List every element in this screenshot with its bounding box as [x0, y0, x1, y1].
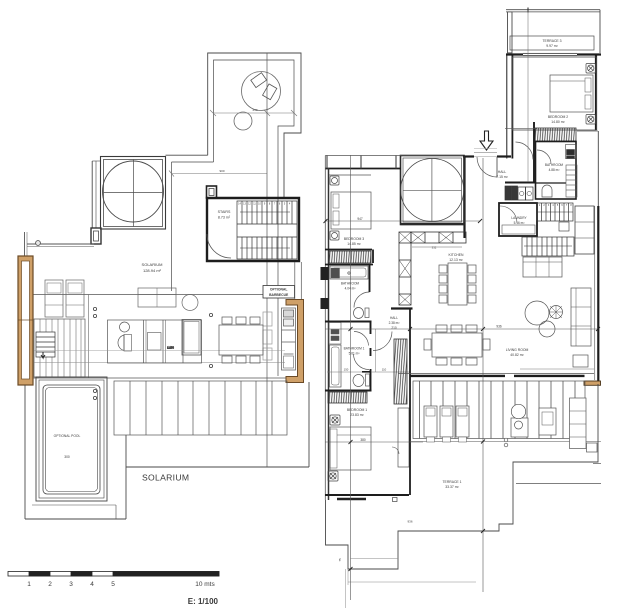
svg-text:BEDROOM 2: BEDROOM 2: [548, 115, 568, 119]
svg-text:2.38 m²: 2.38 m²: [389, 321, 400, 325]
svg-text:9.97 m²: 9.97 m²: [546, 44, 558, 48]
svg-text:LAUNDRY: LAUNDRY: [511, 216, 527, 220]
svg-text:4.88 m²: 4.88 m²: [549, 168, 560, 172]
svg-text:TERRACE 1: TERRACE 1: [442, 480, 461, 484]
svg-text:BATHROOM 1: BATHROOM 1: [344, 347, 365, 351]
svg-text:HALL: HALL: [498, 170, 507, 174]
svg-text:TERRACE 3: TERRACE 3: [542, 39, 561, 43]
svg-text:BARBECUE: BARBECUE: [269, 293, 289, 297]
svg-text:E: 1/100: E: 1/100: [188, 597, 219, 606]
svg-text:SOLARIUM: SOLARIUM: [142, 262, 163, 267]
svg-text:BATHROOM: BATHROOM: [545, 163, 564, 167]
svg-text:2: 2: [48, 581, 52, 588]
svg-text:332: 332: [432, 246, 437, 250]
svg-text:210: 210: [391, 326, 397, 330]
svg-text:150: 150: [344, 368, 349, 372]
svg-text:LIVING ROOM: LIVING ROOM: [506, 348, 529, 352]
svg-text:12.13 m²: 12.13 m²: [449, 258, 463, 262]
svg-text:947: 947: [357, 217, 363, 221]
svg-text:14.85 m²: 14.85 m²: [347, 242, 361, 246]
svg-text:5: 5: [111, 581, 115, 588]
svg-text:5.16 m²: 5.16 m²: [514, 221, 525, 225]
svg-text:23.83 m²: 23.83 m²: [350, 413, 364, 417]
svg-text:7.15 m²: 7.15 m²: [496, 175, 508, 179]
svg-text:3: 3: [69, 581, 73, 588]
svg-text:14.80 m²: 14.80 m²: [551, 120, 565, 124]
svg-text:110: 110: [382, 368, 387, 372]
svg-text:HALL: HALL: [390, 316, 398, 320]
svg-text:KITCHEN: KITCHEN: [449, 253, 464, 257]
svg-text:936: 936: [496, 325, 502, 329]
svg-text:SOLARIUM: SOLARIUM: [142, 473, 189, 483]
svg-text:8.73 m²: 8.73 m²: [218, 216, 231, 220]
svg-text:4.04 m²: 4.04 m²: [345, 287, 356, 291]
svg-text:OPTIONAL POOL: OPTIONAL POOL: [54, 434, 81, 438]
svg-text:1.164: 1.164: [167, 346, 174, 350]
svg-text:BEDROOM 1: BEDROOM 1: [347, 408, 367, 412]
svg-text:OPTIONAL: OPTIONAL: [270, 288, 288, 292]
svg-text:4: 4: [90, 581, 94, 588]
svg-text:936: 936: [407, 520, 412, 524]
svg-text:STAIRS: STAIRS: [218, 210, 231, 214]
svg-text:33.37 m²: 33.37 m²: [445, 485, 459, 489]
svg-text:BATHROOM: BATHROOM: [341, 282, 360, 286]
svg-text:BEDROOM 3: BEDROOM 3: [344, 237, 364, 241]
svg-text:300: 300: [64, 455, 70, 459]
svg-text:380: 380: [360, 438, 366, 442]
svg-text:40.82 m²: 40.82 m²: [510, 353, 524, 357]
svg-text:1: 1: [27, 581, 31, 588]
svg-text:75: 75: [338, 558, 342, 562]
svg-text:128.94 m²: 128.94 m²: [143, 268, 162, 273]
svg-text:10 mts: 10 mts: [195, 581, 215, 588]
svg-text:240: 240: [252, 108, 257, 112]
svg-text:900: 900: [219, 169, 224, 173]
